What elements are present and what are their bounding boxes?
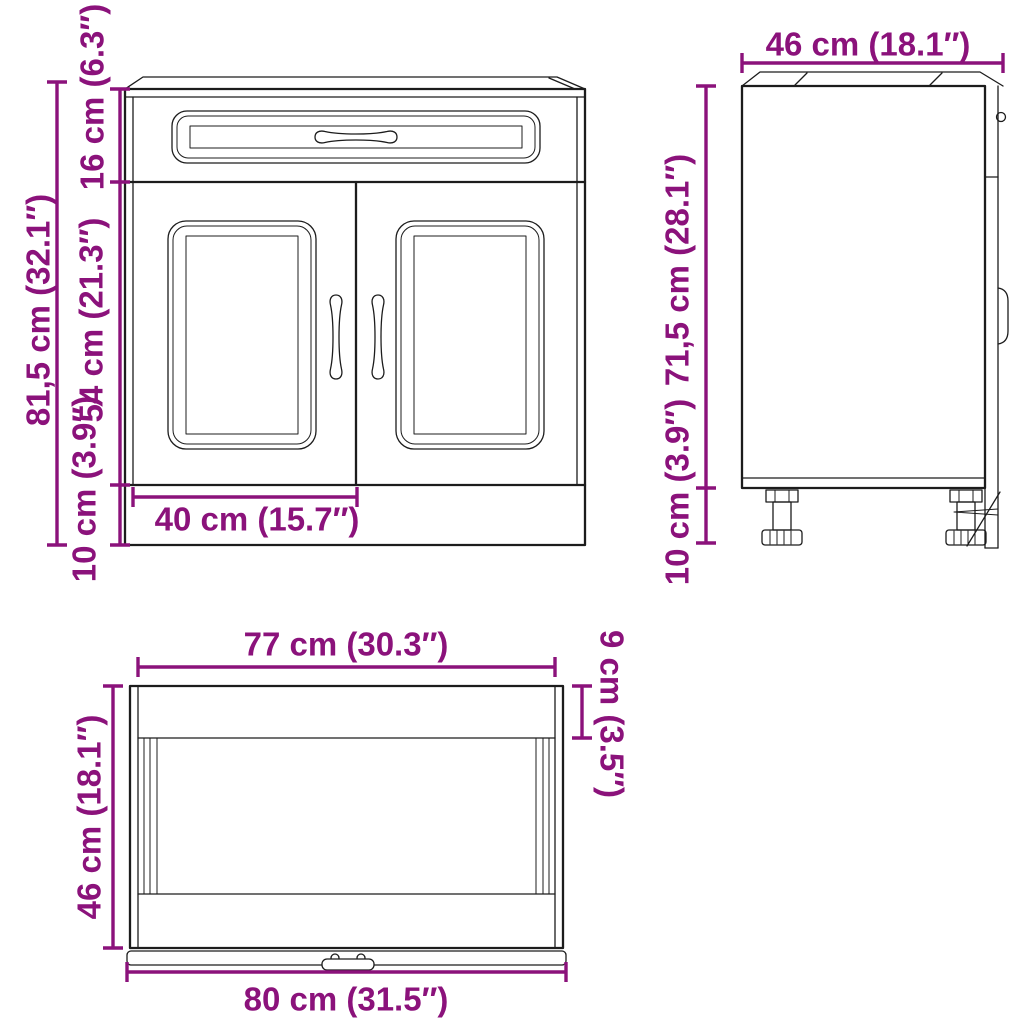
front-total-height-label: 81,5 cm (32.1″) [20,194,57,426]
cabinet-dimension-diagram: 81,5 cm (32.1″) 16 cm (6.3″) 54 cm (21.3… [0,0,1024,1024]
side-rear-leg [946,490,986,545]
right-door [372,221,544,449]
side-body-height-label: 71,5 cm (28.1″) [659,154,696,386]
right-door-handle [372,295,384,379]
front-base-height-label: 10 cm (3.9″) [66,396,103,582]
top-view [127,686,566,970]
side-leg-bracket [967,492,1000,546]
side-leg-height-label: 10 cm (3.9″) [659,399,696,585]
side-front-edge [985,86,1008,548]
side-top-board [742,72,1003,86]
side-carcass [742,86,985,488]
drawer-handle [315,131,397,143]
top-depth-label: 46 cm (18.1″) [71,715,108,920]
side-view [742,72,1008,548]
top-carcass [130,686,563,948]
front-drawer-height-label: 16 cm (6.3″) [74,4,111,190]
side-door-handle [998,288,1008,344]
front-view [125,77,585,545]
diagram-svg: 81,5 cm (32.1″) 16 cm (6.3″) 54 cm (21.3… [0,0,1024,1024]
front-door-width-label: 40 cm (15.7″) [155,501,360,538]
drawer-front [172,111,540,163]
top-rail-depth-label: 9 cm (3.5″) [593,630,630,798]
top-carcass-width-label: 77 cm (30.3″) [244,626,449,663]
top-door-handle [322,954,374,970]
top-view-dimensions [103,657,592,982]
side-leg-pin [954,509,998,515]
front-door-height-label: 54 cm (21.3″) [73,218,110,423]
side-depth-label: 46 cm (18.1″) [766,26,971,63]
front-top-board [125,77,585,89]
top-total-width-label: 80 cm (31.5″) [244,981,449,1018]
left-door [168,221,342,449]
side-front-leg [762,490,802,545]
left-door-handle [330,295,342,379]
